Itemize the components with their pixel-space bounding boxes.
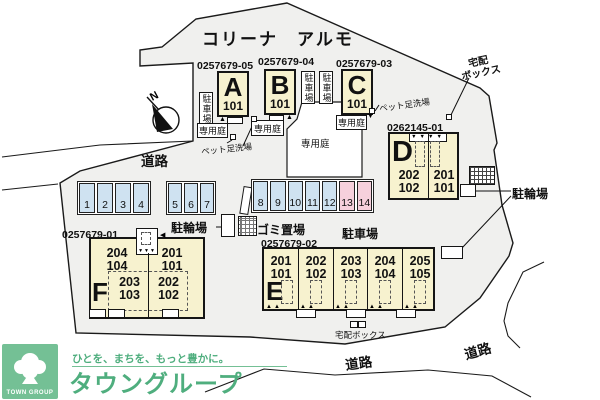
unit-number: 102 [391, 182, 427, 195]
unit-number: 103 [113, 289, 146, 302]
delivery-box-unit2 [358, 321, 366, 328]
parking-group-2: 5 6 7 [166, 181, 216, 215]
building-f: ▼▼▼ ◀ 204 104 201 101 F 203 103 202 102 [89, 237, 205, 319]
building-b-entrance-marker-icon: ▲ [286, 114, 293, 121]
parking-lot-label: 駐車場 [342, 225, 378, 242]
building-f-unit-201: 201 101 [154, 247, 190, 273]
parking-space: 14 [357, 181, 372, 211]
building-d-col1-units: 202 102 [391, 169, 427, 195]
building-f-porch3 [162, 309, 179, 318]
building-f-unit-202: 202 102 [152, 276, 185, 302]
building-f-porch1 [89, 309, 106, 318]
building-f-porch2 [108, 309, 125, 318]
building-e-unit-205: 205 105 [403, 255, 437, 281]
building-e-stair5 [414, 280, 426, 304]
petwash-b-marker [251, 116, 257, 122]
building-b-unit: 101 [266, 98, 294, 110]
parking-space: 11 [305, 181, 320, 211]
building-e-stair2 [310, 280, 322, 304]
bike-parking-left-label: 駐輪場 [171, 219, 207, 236]
building-a-porch [227, 117, 243, 124]
town-group-mark: TOWN GROUP [2, 390, 58, 396]
building-f-letter: F [92, 279, 108, 305]
parking-space: 12 [322, 181, 337, 211]
building-e-stair1 [281, 280, 293, 304]
delivery-box-bottom-label: 宅配ボックス [335, 329, 386, 341]
parking-space: 8 [253, 181, 268, 211]
building-c-unit: 101 [343, 98, 371, 110]
building-b-code: 0257679-04 [258, 56, 314, 68]
building-d-col2-units: 201 101 [429, 169, 459, 195]
building-f-unit-204: 204 104 [99, 247, 135, 273]
road-edge-left-bottom [2, 184, 58, 190]
building-e-porch1 [296, 309, 316, 318]
building-e-unit-202: 202 102 [299, 255, 333, 281]
building-e-unit-204: 204 104 [368, 255, 402, 281]
building-e-entry1-icon: ▲▲ [266, 304, 282, 310]
building-e-entry4-icon: ▲▲ [369, 304, 385, 310]
building-d-stair2 [430, 141, 440, 167]
building-a-parking-label: 駐車場 [199, 92, 213, 126]
building-b: B 101 [264, 69, 296, 115]
building-f-unit-203: 203 103 [113, 276, 146, 302]
parking-space: 6 [184, 183, 198, 213]
parking-space: 2 [97, 183, 113, 213]
town-group-logo: TOWN GROUP [2, 344, 58, 399]
bike-shed-box1 [460, 184, 476, 197]
bike-shed-box2 [441, 246, 463, 259]
unit-number: 102 [152, 289, 185, 302]
building-a-unit: 101 [219, 100, 247, 112]
unit-number: 101 [429, 182, 459, 195]
building-b-garden-label: 専用庭 [251, 120, 284, 136]
road-edge-right [504, 262, 544, 348]
road-edge-bottom [205, 369, 531, 397]
logo-name: タウングループ [69, 364, 243, 399]
parking-space: 3 [115, 183, 131, 213]
building-e-stair4 [379, 280, 391, 304]
building-b-parking-label: 駐車場 [301, 71, 315, 104]
parking-space: 13 [339, 181, 354, 211]
parking-space: 1 [79, 183, 95, 213]
building-e-unit-203: 203 103 [334, 255, 368, 281]
parking-space: 7 [200, 183, 214, 213]
site-plan: N コリーナ アルモ 0257679-05 A 101 駐車場 ▲ 専用庭 02… [0, 0, 600, 400]
road-left-label: 道路 [141, 150, 168, 170]
road-bottom-center-label: 道路 [344, 350, 374, 374]
parking-space: 4 [133, 183, 149, 213]
garbage-area-label: ゴミ置場 [257, 221, 305, 238]
shared-garden-label: 専用庭 [301, 136, 330, 150]
building-d-stair1 [415, 141, 425, 167]
parking-space: 5 [168, 183, 182, 213]
building-e-porch2 [346, 309, 366, 318]
building-b-letter: B [266, 72, 294, 98]
building-e-porch3 [396, 309, 416, 318]
parking-group-3: 8 9 10 11 12 13 14 [251, 179, 374, 213]
building-d-letter: D [392, 138, 413, 167]
parking-space: 10 [288, 181, 303, 211]
building-f-divider [148, 253, 149, 317]
site-title: コリーナ アルモ [202, 25, 354, 50]
bike-parking-right-label: 駐輪場 [512, 185, 548, 202]
petwash-a-marker [230, 134, 236, 140]
building-a-letter: A [219, 74, 247, 100]
delivery-box-unit1 [350, 321, 358, 328]
parking-space: 9 [270, 181, 285, 211]
bike-left-box [221, 214, 235, 237]
building-c-letter: C [343, 72, 371, 98]
parking-group-1: 1 2 3 4 [77, 181, 151, 215]
delivery-box-marker [446, 114, 452, 120]
building-f-stair-dash [141, 232, 151, 245]
building-a: A 101 [217, 71, 249, 117]
petwash-c-arrow-icon: ▼ [367, 113, 374, 120]
compass-north-label: N [148, 89, 161, 103]
building-f-entry-arrow-icon: ◀ [160, 232, 165, 239]
building-a-entrance-marker-icon: ▲ [219, 116, 226, 123]
garbage-station-box [238, 216, 257, 236]
building-c-garden-label: 専用庭 [336, 115, 367, 130]
building-c-parking-label: 駐車場 [319, 71, 333, 104]
building-a-garden-label: 専用庭 [197, 123, 228, 138]
bike-rack [469, 166, 495, 185]
building-d: ▼▼▼▼ D 202 102 201 101 [388, 132, 459, 200]
building-e-stair3 [345, 280, 357, 304]
